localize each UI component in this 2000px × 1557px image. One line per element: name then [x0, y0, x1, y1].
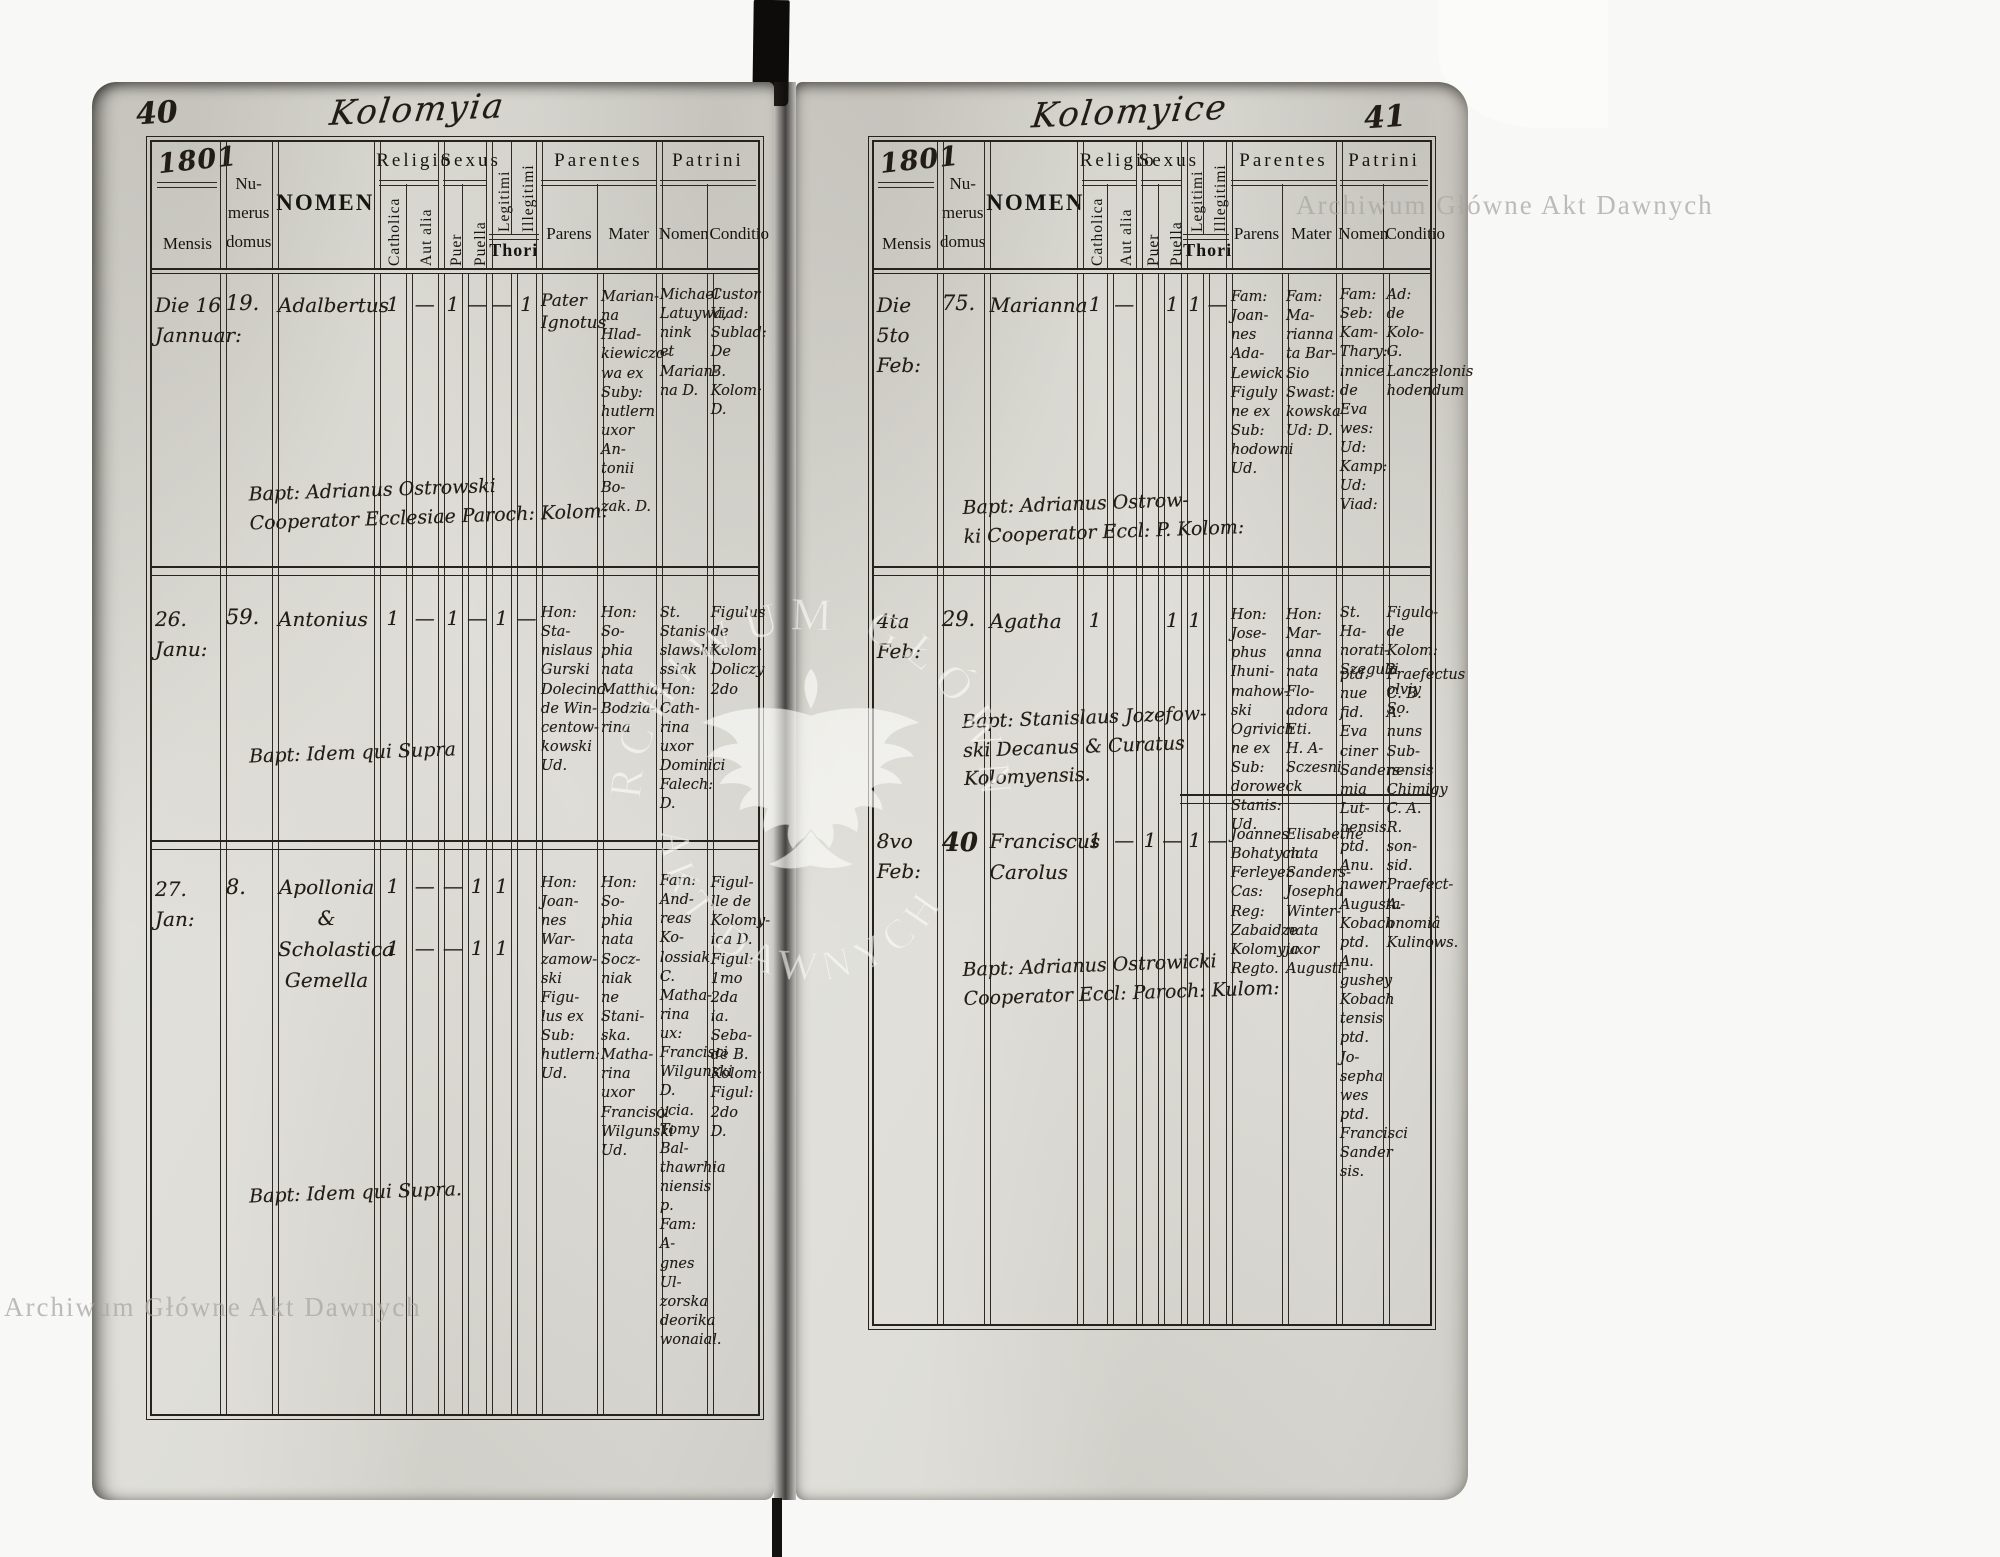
- entry-mark: 1: [377, 936, 408, 960]
- register-table: 1801 Mensis Nu- merus domus NOMEN Religi…: [872, 140, 1432, 1326]
- mater-text: Hon: So- phia nata Socz- niak ne Stani- …: [601, 874, 657, 1161]
- header-rule: [984, 142, 991, 268]
- entry-mark: —: [410, 874, 440, 898]
- header-rule: [1136, 142, 1143, 268]
- archive-watermark-text: Archiwum Główne Akt Dawnych: [4, 1292, 422, 1323]
- baptism-note: Bapt: Adrianus Ostrow- ki Cooperator Ecc…: [962, 482, 1308, 551]
- religio-underline: [379, 180, 438, 186]
- entry-mark: —: [490, 292, 513, 316]
- page-title: Kolomyia: [327, 86, 507, 134]
- header-rule: [406, 184, 407, 268]
- patrini-nomen-text: Fam: Seb: Kam- Thary: innice de Eva wes:…: [1340, 286, 1384, 516]
- entry-mark: 1: [490, 936, 513, 960]
- entry-mark: 1: [1184, 292, 1205, 316]
- header-parentes: Parentes: [1229, 150, 1339, 172]
- baptism-note: Bapt: Idem qui Supra.: [249, 1169, 625, 1211]
- column-rule: [1077, 274, 1084, 1324]
- parens-text: Hon: Joan- nes War- zamow- ski Figu- lus…: [541, 874, 598, 1084]
- entry-date: 26. Janu:: [155, 604, 222, 664]
- page-number: 40: [135, 95, 179, 133]
- entry-mark: 1: [466, 874, 488, 898]
- book-spine-bottom: [772, 1498, 782, 1557]
- entry-mark: 1: [1162, 292, 1183, 316]
- header-puer: Puer: [1145, 188, 1163, 266]
- entry-mark: —: [410, 606, 440, 630]
- left-page: 40 Kolomyia 1801 Mensis Nu- merus domus …: [92, 82, 774, 1500]
- header-mensis: Mensis: [874, 234, 939, 254]
- header-patrini: Patrini: [1338, 150, 1430, 172]
- header-rule: [438, 142, 445, 268]
- header-rule: [536, 142, 543, 268]
- header-religio: Religio: [1080, 150, 1139, 172]
- baptism-note: Bapt: Stanislaus Jozefow- ski Decanus & …: [962, 696, 1309, 793]
- patrini-nomen-text: Michael Latuywa, nink et Marian- na D.: [660, 286, 708, 401]
- header-rule: [1158, 184, 1159, 268]
- mater-text: Hon: So- phia nata Matthia Bodzia- rina: [601, 604, 657, 738]
- header-patrini-nomen: Nomen: [658, 224, 710, 244]
- entry-house-number: 75.: [942, 290, 984, 318]
- entry-name: Marianna: [990, 290, 1079, 321]
- entry-mark: 1: [490, 606, 513, 630]
- parentes-underline: [541, 180, 656, 186]
- header-sexus: Sexus: [440, 150, 488, 172]
- entry-mark: —: [1162, 828, 1183, 852]
- header-rule: [374, 142, 381, 268]
- entry-mark: 1: [1081, 292, 1109, 316]
- header-sexus: Sexus: [1139, 150, 1183, 172]
- table-header: 1801 Mensis Nu- merus domus NOMEN Religi…: [152, 142, 758, 270]
- entry-mark: —: [1207, 292, 1228, 316]
- entry-house-number: 40: [942, 826, 984, 860]
- patrini-conditio-text: Custor Viad: Sublad: De B. Kolom: D.: [711, 286, 756, 420]
- column-rule: [1136, 274, 1143, 1324]
- entry-house-number: 8.: [226, 874, 271, 902]
- header-thori: Thori: [1183, 240, 1229, 261]
- entry-house-number: 19.: [226, 290, 271, 318]
- year-label: 1801: [878, 143, 937, 180]
- header-thori: Thori: [489, 240, 539, 261]
- header-parentes: Parentes: [539, 150, 658, 172]
- entry-mark: 1: [490, 874, 513, 898]
- scanned-register-page: { "document": { "watermark_text": "Archi…: [0, 0, 2000, 1557]
- header-mater: Mater: [599, 224, 658, 244]
- header-rule: [272, 142, 279, 268]
- entry-date: Die 5to Feb:: [877, 290, 938, 380]
- entry-mark: 1: [1184, 828, 1205, 852]
- entry-name: Agatha: [990, 606, 1079, 637]
- entry-mark: —: [466, 606, 488, 630]
- page-title: Kolomyice: [1029, 88, 1230, 137]
- patrini-conditio-text: Ad: de Kolo- G. Lanczelonis hodendum: [1387, 286, 1429, 401]
- header-religio: Religio: [376, 150, 440, 172]
- header-rule: [937, 142, 944, 268]
- entry-separator: [872, 566, 1432, 576]
- entry-mark: 1: [442, 606, 464, 630]
- entry-mark: —: [466, 292, 488, 316]
- header-numerus-domus: Nu- merus domus: [939, 170, 986, 257]
- entry-mark: 1: [377, 606, 408, 630]
- register-table: 1801 Mensis Nu- merus domus NOMEN Religi…: [150, 140, 760, 1416]
- entry-date: Die 16 Jannuar:: [155, 290, 222, 350]
- header-mater: Mater: [1284, 224, 1338, 244]
- entry-mark: 1: [515, 292, 538, 316]
- year-label: 1801: [157, 143, 221, 180]
- header-catholica: Catholica: [1089, 188, 1107, 266]
- header-legitimi: Legitimi: [1189, 148, 1207, 232]
- header-rule: [511, 142, 512, 234]
- header-nomen: NOMEN: [986, 190, 1079, 216]
- header-patrini-nomen: Nomen: [1338, 224, 1385, 244]
- entry-mark: —: [442, 874, 464, 898]
- entry-mark: 1: [442, 292, 464, 316]
- entry-mark: —: [442, 936, 464, 960]
- header-patrini: Patrini: [658, 150, 758, 172]
- entry-date: 27. Jan:: [155, 874, 222, 934]
- entry-mark: —: [410, 292, 440, 316]
- entry-mark: 1: [1162, 608, 1183, 632]
- entry-name: Apollonia & Scholastica Gemella: [278, 872, 375, 996]
- header-rule: [1282, 184, 1283, 268]
- entry-mark: 1: [1140, 828, 1161, 852]
- patrini-underline: [1340, 180, 1427, 186]
- header-catholica: Catholica: [386, 188, 404, 266]
- right-page: 41 Kolomyice 1801 Mensis Nu- merus domus…: [796, 82, 1468, 1500]
- column-rule: [1158, 274, 1165, 1324]
- header-rule: [220, 142, 227, 268]
- entry-mark: —: [410, 936, 440, 960]
- sexus-underline: [1141, 180, 1181, 186]
- entry-mark: —: [1110, 828, 1138, 852]
- header-parens: Parens: [539, 224, 600, 244]
- parens-text: Fam: Joan- nes Ada- Lewick Figuly ne ex …: [1231, 288, 1283, 479]
- header-rule: [486, 142, 493, 268]
- header-conditio: Conditio: [710, 224, 758, 244]
- header-aut-alia: Aut alia: [418, 188, 436, 266]
- entry-mark: 1: [1081, 608, 1109, 632]
- entry-name: Adalbertus: [278, 290, 375, 321]
- header-rule: [597, 184, 598, 268]
- patrini-nomen-text: St. Stanis- slawski ssiak Hon: Cath- rin…: [660, 604, 708, 814]
- header-rule: [1181, 142, 1188, 268]
- header-aut-alia: Aut alia: [1118, 188, 1136, 266]
- entry-mark: —: [1207, 828, 1228, 852]
- entry-house-number: 59.: [226, 604, 271, 632]
- header-parens: Parens: [1229, 224, 1285, 244]
- header-rule: [1203, 142, 1204, 234]
- table-body: Die 16 Jannuar: 19. Adalbertus 1 — 1 — —…: [152, 273, 758, 1414]
- entry-mark: 1: [466, 936, 488, 960]
- header-rule: [1226, 142, 1233, 268]
- column-rule: [937, 274, 944, 1324]
- religio-underline: [1082, 180, 1136, 186]
- year-underline: [878, 182, 934, 188]
- patrini-conditio-text: Figul- lle de Kolomy- ica D. Figul: 1mo …: [711, 874, 756, 1142]
- header-rule: [1077, 142, 1084, 268]
- parentes-underline: [1231, 180, 1336, 186]
- patrini-conditio-text: Figulus de Kolom: Doliczy 2do: [711, 604, 756, 700]
- patrini-nomen-text: Fam: And- reas Ko- lossiak C. Matha- rin…: [660, 872, 708, 1350]
- page-number: 41: [1363, 99, 1407, 137]
- entry-mark: —: [1110, 292, 1138, 316]
- entry-separator: [150, 840, 760, 850]
- header-conditio: Conditio: [1386, 224, 1430, 244]
- header-rule: [462, 184, 463, 268]
- entry-mark: 1: [1081, 828, 1109, 852]
- mater-text: Fam: Ma- rianna ta Bar- Sio Swast: kowsk…: [1286, 288, 1337, 441]
- entry-name: Franciscus Carolus: [990, 826, 1079, 888]
- table-body: Die 5to Feb: 75. Marianna 1 — 1 1 — Fam:…: [874, 273, 1430, 1324]
- baptism-note: Bapt: Adrianus Ostrowski Cooperator Eccl…: [248, 467, 625, 537]
- header-nomen: NOMEN: [274, 190, 376, 216]
- header-rule: [1107, 184, 1108, 268]
- header-rule: [656, 142, 663, 268]
- entry-mark: —: [515, 606, 538, 630]
- header-numerus-domus: Nu- merus domus: [223, 170, 275, 257]
- year-underline: [157, 182, 218, 188]
- column-rule: [1107, 274, 1114, 1324]
- parens-text: Pater Ignotus: [541, 290, 598, 335]
- entry-date: 4ta Feb:: [877, 606, 938, 666]
- entry-mark: 1: [377, 874, 408, 898]
- entry-mark: 1: [1184, 608, 1205, 632]
- baptism-note: Bapt: Adrianus Ostrowicki Cooperator Ecc…: [962, 944, 1308, 1013]
- archive-watermark-text: Archiwum Główne Akt Dawnych: [1296, 190, 1714, 221]
- entry-mark: 1: [377, 292, 408, 316]
- entry-house-number: 29.: [942, 606, 984, 634]
- column-rule: [984, 274, 991, 1324]
- header-rule: [707, 184, 708, 268]
- entry-separator: [150, 566, 760, 576]
- sexus-underline: [443, 180, 487, 186]
- entry-name: Antonius: [278, 604, 375, 635]
- header-mensis: Mensis: [152, 234, 223, 254]
- entry-date: 8vo Feb:: [877, 826, 938, 886]
- page-gutter: [774, 82, 796, 1500]
- patrini-conditio-text: Praefectus C. B. A. nuns Sub- nensis Chi…: [1387, 666, 1429, 953]
- patrini-nomen-text: ptd. nue fid. Eva ciner Sanders- mia Lut…: [1340, 666, 1384, 1182]
